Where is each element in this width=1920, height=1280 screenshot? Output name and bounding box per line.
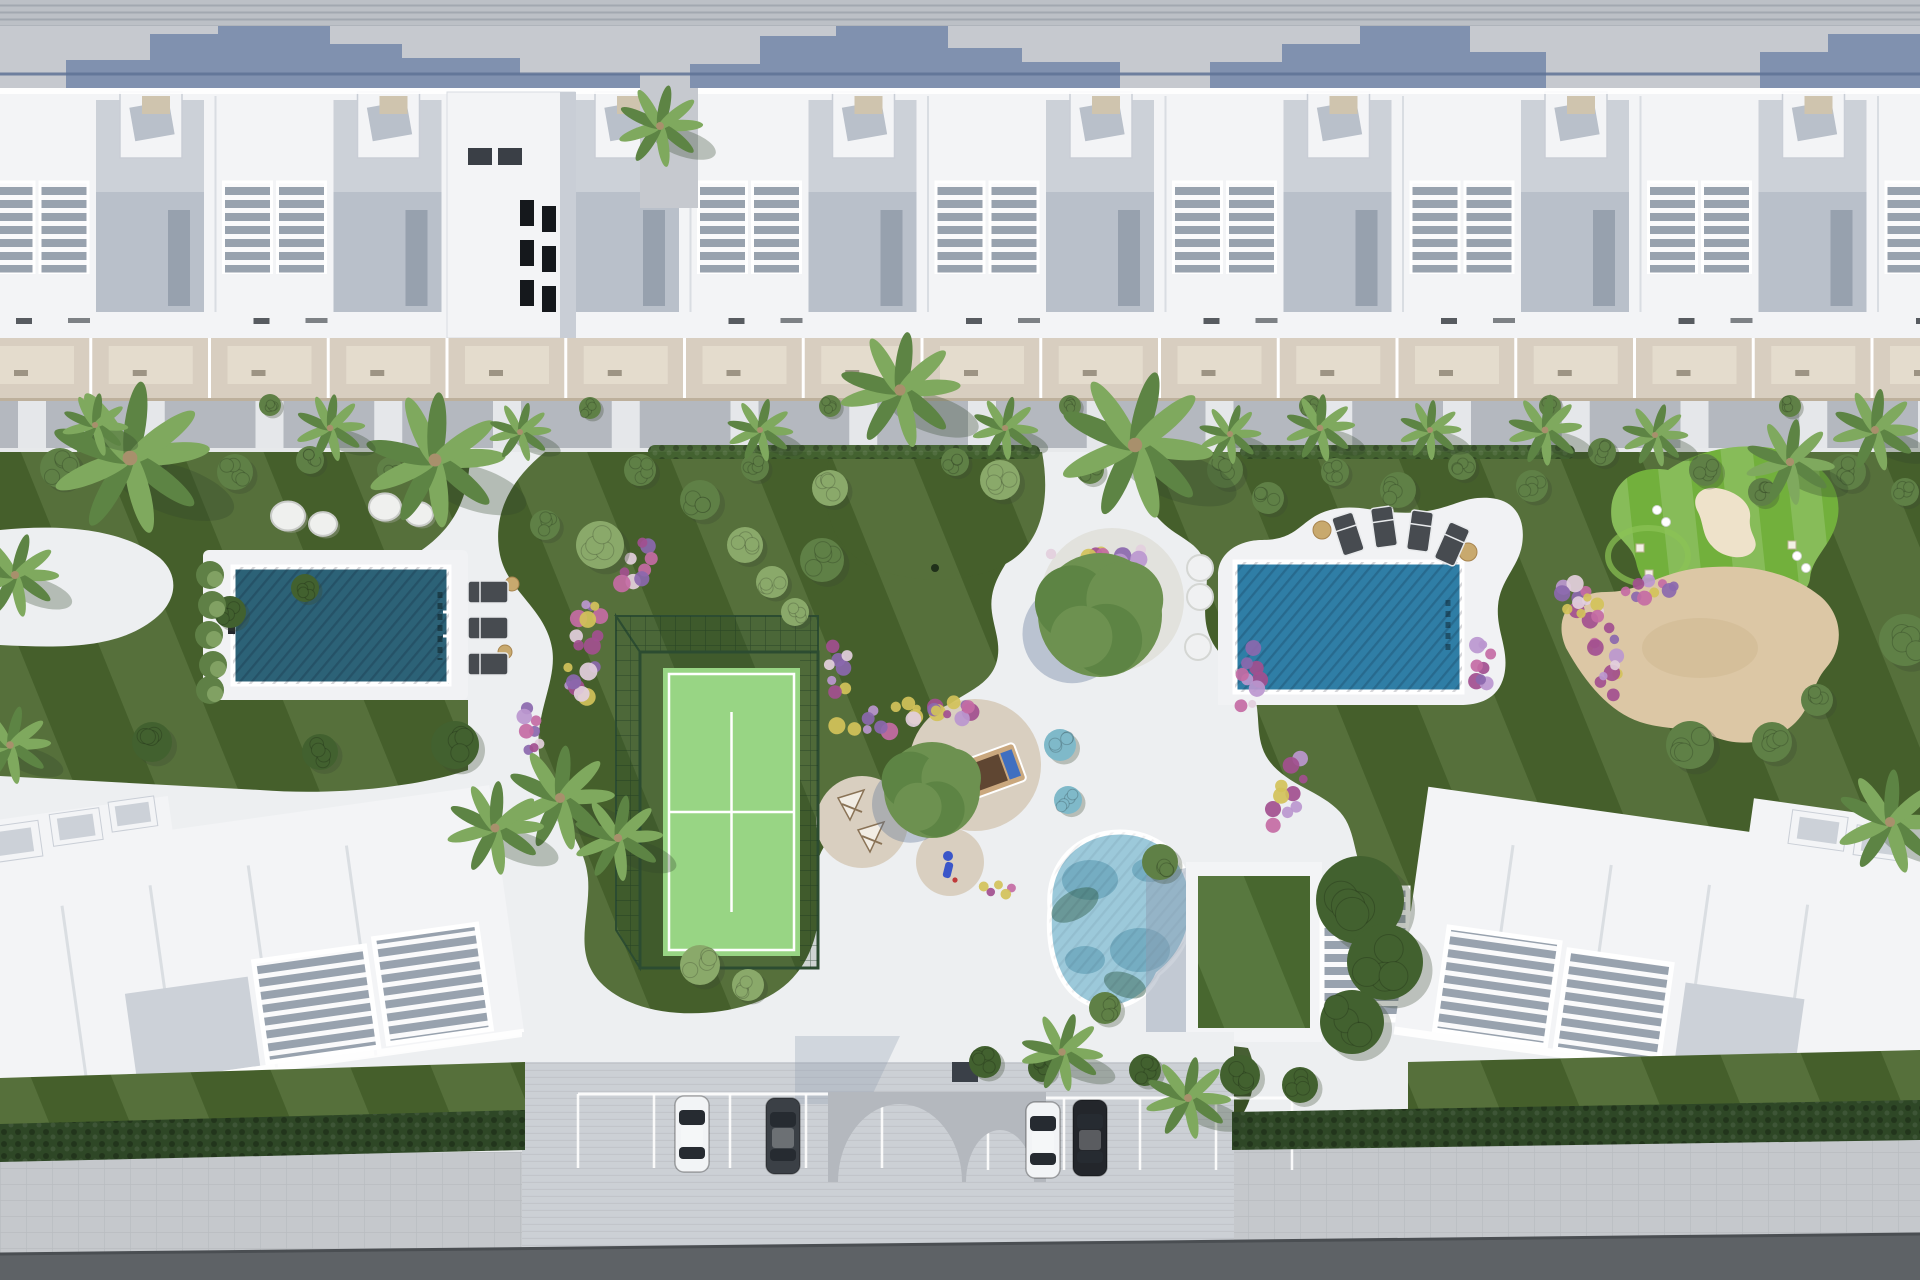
pergola-slats (936, 182, 984, 274)
window (306, 318, 328, 323)
bush-clump (451, 744, 469, 762)
flower-tuft (994, 880, 1003, 889)
lower-ledge (693, 274, 809, 286)
golf-ball (1802, 564, 1811, 573)
bush-clump (1268, 493, 1280, 505)
tree-canopy (894, 783, 942, 831)
flower-tuft (1001, 889, 1012, 900)
entry-door (729, 318, 745, 324)
parked-car (766, 1098, 800, 1174)
bush-clump (266, 400, 274, 408)
bush-clump (731, 536, 745, 550)
car-rear-window (679, 1147, 705, 1159)
facade-strip (210, 312, 448, 338)
entry-door (16, 318, 32, 324)
car-roof (681, 1126, 703, 1146)
golf-ball (1793, 552, 1802, 561)
terrace-patio (0, 346, 74, 384)
window (1018, 318, 1040, 323)
terrace-patio (703, 346, 787, 384)
palm-crown (1652, 432, 1658, 438)
site-plan-svg (0, 0, 1920, 1280)
right-pool-texture (1235, 562, 1462, 692)
entry-door (1916, 318, 1920, 324)
bush-clump (1331, 460, 1342, 471)
palm-crown (757, 427, 763, 433)
bush-clump (1841, 457, 1855, 471)
terrace-patio (346, 346, 430, 384)
driveway-apron (18, 401, 46, 451)
flower-tuft (1485, 649, 1496, 660)
palm-crown (6, 741, 14, 749)
parking-texture (522, 1058, 1234, 1248)
bush-clump (824, 405, 832, 413)
patio-furniture (1558, 370, 1572, 376)
parapet (685, 88, 923, 94)
parapet (1160, 88, 1398, 94)
bush-clump (593, 526, 611, 544)
bush-clump (1218, 459, 1232, 473)
bush-clump (220, 459, 234, 473)
pergola-slats (1555, 950, 1672, 1064)
stairwell (643, 210, 665, 306)
bush-clump (311, 743, 325, 757)
left-pool-texture (233, 567, 449, 684)
bush-clump (1102, 1009, 1114, 1021)
pergola-slats (1435, 927, 1560, 1046)
tee-marker (1636, 544, 1644, 552)
pergola-slats (1886, 182, 1920, 274)
padel-cage-right-grid (800, 652, 818, 968)
bush-clump (1061, 733, 1073, 745)
round-pouf (1185, 634, 1211, 660)
terrace-patio (1415, 346, 1499, 384)
bush-clump (1324, 995, 1348, 1019)
pergola-slats (254, 946, 379, 1063)
rooftop-pergola-box (380, 96, 408, 114)
flower-tuft (1469, 637, 1486, 654)
palm-crown (614, 834, 622, 842)
bush-clump (1141, 1057, 1153, 1069)
upper-ledge (1168, 160, 1284, 182)
upper-ledge (0, 160, 96, 182)
patio-furniture (1677, 370, 1691, 376)
lower-ledge (1168, 274, 1284, 286)
stairwell (1593, 210, 1615, 306)
car-rear-window (770, 1149, 796, 1161)
bush-clump (580, 409, 588, 417)
stairwell (1831, 210, 1853, 306)
upper-ledge (1643, 160, 1759, 182)
patio-furniture (1795, 370, 1809, 376)
upper-ledge (693, 160, 809, 182)
bush-clump (740, 976, 752, 988)
flower-tuft (1471, 659, 1483, 671)
palm-crown (1885, 817, 1895, 827)
corrugated-texture (0, 0, 1920, 26)
flower-tuft (931, 705, 941, 715)
palm-crown (1317, 425, 1323, 431)
bush-clump (774, 577, 786, 589)
window (68, 318, 90, 323)
terrace-edge-line (0, 398, 1920, 401)
terrace-patio (1296, 346, 1380, 384)
poolside-bush (199, 651, 227, 679)
golf-ball (1653, 506, 1662, 515)
poolside-bush (196, 676, 224, 704)
bush-clump (821, 474, 835, 488)
parapet (1872, 88, 1920, 94)
bush-clump (298, 587, 309, 598)
window (1731, 318, 1753, 323)
bush-clump (540, 512, 551, 523)
bush-clump (826, 487, 840, 501)
parapet (210, 88, 448, 94)
bush-clump (753, 456, 764, 467)
window (781, 318, 803, 323)
bush-clump (629, 457, 641, 469)
car-windshield (770, 1112, 796, 1127)
car-windshield (1030, 1116, 1056, 1131)
decorative-stone (309, 512, 337, 536)
terrace-patio (228, 346, 312, 384)
bush-clump (1691, 727, 1709, 745)
white-tower (447, 92, 576, 338)
flower-tuft (828, 685, 842, 699)
bush-clump (1383, 491, 1397, 505)
facade-strip (1160, 312, 1398, 338)
flower-tuft (826, 640, 839, 653)
bush-clump (1296, 1081, 1310, 1095)
bush-clump (1002, 472, 1017, 487)
bush-clump (207, 686, 223, 702)
facade-strip (685, 312, 923, 338)
bush-clump (209, 601, 225, 617)
flower-tuft (827, 676, 836, 685)
palm-crown (1871, 426, 1879, 434)
lower-ledge (930, 274, 1046, 286)
palm-crown (517, 429, 523, 435)
bush-clump (1519, 485, 1531, 497)
palm-crown (1058, 1048, 1066, 1056)
patio-furniture (727, 370, 741, 376)
bush-clump (1135, 1072, 1147, 1084)
pergola-slats (1465, 182, 1513, 274)
stairwell (881, 210, 903, 306)
padel-court-group (616, 616, 818, 968)
tee-marker (1788, 541, 1796, 549)
bush-clump (236, 472, 250, 486)
clubhouse-roof-stripes (1198, 876, 1310, 1028)
car-roof (1032, 1132, 1054, 1152)
palm-crown (1002, 425, 1008, 431)
bush-clump (44, 469, 59, 484)
facade-strip (0, 312, 210, 338)
bush-clump (683, 962, 698, 977)
bush-clump (1773, 731, 1788, 746)
palm-crown (894, 384, 905, 395)
pergola-slats (753, 182, 801, 274)
sand-shade (1642, 618, 1758, 678)
rooftop-ac-unit (498, 148, 522, 165)
car-roof (772, 1128, 794, 1148)
bush-clump (210, 661, 226, 677)
lounger-body (468, 653, 508, 675)
bush-clump (1348, 1022, 1372, 1046)
palm-crown (123, 451, 138, 466)
lounger-body (1370, 506, 1397, 549)
palm-crown (1128, 438, 1142, 452)
bush-clump (788, 603, 799, 614)
terrace-patio (584, 346, 668, 384)
window (1256, 318, 1278, 323)
entry-door (1441, 318, 1457, 324)
flower-tuft (842, 650, 853, 661)
terrace-patio (1653, 346, 1737, 384)
bush-clump (1335, 897, 1368, 930)
palm-crown (1227, 431, 1233, 437)
car-windshield (679, 1110, 705, 1125)
rooftop-pergola-box (142, 96, 170, 114)
bush-clump (1374, 935, 1403, 964)
aerial-site-render (0, 0, 1920, 1280)
facade-strip (1635, 312, 1873, 338)
bush-clump (588, 402, 596, 410)
lower-ledge (1643, 274, 1759, 286)
patio-furniture (1202, 370, 1216, 376)
entry-door (1204, 318, 1220, 324)
bush-clump (952, 454, 963, 465)
upper-ledge (930, 160, 1046, 182)
pergola-slats (374, 924, 492, 1043)
palm-crown (1184, 1094, 1192, 1102)
palm-crown (11, 571, 19, 579)
rooftop-pergola-box (1567, 96, 1595, 114)
sun-lounger (468, 653, 508, 675)
bush-clump (206, 631, 222, 647)
window (1493, 318, 1515, 323)
flower-tuft (1476, 674, 1486, 684)
terrace-patio (1178, 346, 1262, 384)
palm-crown (1427, 427, 1433, 433)
stairwell (1118, 210, 1140, 306)
rooftop-pergola-box (1092, 96, 1120, 114)
parapet (1635, 88, 1873, 94)
patio-furniture (608, 370, 622, 376)
pergola-slats (0, 182, 34, 274)
parapet (1397, 88, 1635, 94)
tower-side-shade (560, 92, 576, 338)
palm-crown (1542, 427, 1549, 434)
upper-ledge (1880, 160, 1920, 182)
decorative-stone (369, 493, 401, 520)
pergola-slats (699, 182, 747, 274)
side-table (1313, 521, 1331, 539)
palm-crown (555, 793, 565, 803)
entry-door (254, 318, 270, 324)
entry-door (966, 318, 982, 324)
bush-clump (1067, 789, 1078, 800)
sun-lounger (1406, 510, 1433, 553)
pergola-slats (1649, 182, 1697, 274)
lounger-body (1406, 510, 1433, 553)
sun-lounger (468, 581, 508, 603)
palm-crown (656, 122, 664, 130)
bush-clump (986, 475, 1001, 490)
stairwell (168, 210, 190, 306)
poolside-bush (195, 621, 223, 649)
patio-furniture (1083, 370, 1097, 376)
pergola-slats (990, 182, 1038, 274)
bush-clump (1599, 441, 1610, 452)
terrace-patio (940, 346, 1024, 384)
palm-crown (429, 454, 442, 467)
bush-clump (1238, 1073, 1253, 1088)
car-windshield (1077, 1114, 1103, 1129)
terrace-patio (465, 346, 549, 384)
flower-tuft (824, 659, 835, 670)
rooftop-pergola-box (1805, 96, 1833, 114)
lower-ledge (1405, 274, 1521, 286)
patio-furniture (133, 370, 147, 376)
patio-furniture (489, 370, 503, 376)
rooftop-ac-unit (468, 148, 492, 165)
bush-clump (1049, 738, 1061, 750)
bush-clump (140, 729, 155, 744)
palm-crown (92, 422, 98, 428)
patio-furniture (14, 370, 28, 376)
lower-ledge (0, 274, 96, 286)
sun-lounger (468, 617, 508, 639)
pergola-slats (1174, 182, 1222, 274)
terrace-patio (1771, 346, 1855, 384)
stairwell (406, 210, 428, 306)
terrace-patio (1059, 346, 1143, 384)
lower-ledge (218, 274, 334, 286)
bush-clump (1352, 958, 1381, 987)
terrace-patio (1534, 346, 1618, 384)
townhouse-row (0, 88, 1920, 338)
bush-clump (745, 538, 759, 552)
pergola-slats (40, 182, 88, 274)
golf-ball (1662, 518, 1671, 527)
parked-car (1073, 1100, 1107, 1176)
bush-clump (303, 449, 314, 460)
pergola-slats (224, 182, 272, 274)
bush-clump (1379, 962, 1408, 991)
round-pouf (1187, 555, 1213, 581)
pergola-slats (1703, 182, 1751, 274)
rooftop-pergola-box (1330, 96, 1358, 114)
patio-furniture (252, 370, 266, 376)
facade-strip (1872, 312, 1920, 338)
bush-clump (1706, 459, 1718, 471)
car-roof (1079, 1130, 1101, 1150)
pergola-slats (1228, 182, 1276, 274)
parked-car (1026, 1102, 1060, 1178)
bush-clump (1332, 472, 1343, 483)
decorative-stone (271, 502, 305, 531)
bush-clump (701, 950, 716, 965)
facade-strip (922, 312, 1160, 338)
flower-tuft (1046, 549, 1056, 559)
bush-clump (538, 525, 549, 536)
pergola-slats (278, 182, 326, 274)
bush-clump (760, 578, 772, 590)
poolside-bush (196, 561, 224, 589)
bush-clump (1452, 464, 1463, 475)
car-rear-window (1030, 1153, 1056, 1165)
palm-crown (327, 425, 333, 431)
patio-furniture (1320, 370, 1334, 376)
bush-clump (1783, 396, 1791, 404)
lower-ledge (1880, 274, 1920, 286)
hedgerow-texture (1240, 445, 1575, 459)
flower-tuft (961, 700, 975, 714)
bush-clump (1894, 488, 1905, 499)
tree-canopy (1050, 606, 1112, 668)
pergola-slats (1411, 182, 1459, 274)
palm-crown (1786, 458, 1794, 466)
bush-clump (1808, 686, 1820, 698)
bush-clump (983, 1061, 995, 1073)
bush-clump (814, 542, 831, 559)
bush-clump (973, 1053, 985, 1065)
patio-furniture (1914, 370, 1920, 376)
hedgerow-texture (648, 445, 1040, 459)
sun-lounger (1370, 506, 1397, 549)
patio-furniture (964, 370, 978, 376)
lounger-body (468, 617, 508, 639)
bush-clump (1066, 404, 1074, 412)
flower-tuft (947, 695, 961, 709)
bush-clump (1056, 801, 1067, 812)
clubhouse-shadow (1146, 868, 1186, 1042)
patio-furniture (370, 370, 384, 376)
bush-clump (1254, 487, 1266, 499)
roof-terrace (125, 977, 260, 1083)
terrace-patio (109, 346, 193, 384)
bush-clump (1160, 863, 1174, 877)
lounger-body (468, 581, 508, 603)
patio-furniture (1439, 370, 1453, 376)
bush-clump (1694, 467, 1706, 479)
parapet (0, 88, 210, 94)
parked-car (675, 1096, 709, 1172)
driveway-apron (612, 401, 640, 451)
bush-clump (641, 458, 653, 470)
putting-hole (931, 564, 939, 572)
car-rear-window (1077, 1151, 1103, 1163)
entry-door (1679, 318, 1695, 324)
upper-ledge (1405, 160, 1521, 182)
bush-clump (695, 497, 710, 512)
terrace-patio (1890, 346, 1920, 384)
round-pouf (1187, 584, 1213, 610)
stairwell (1356, 210, 1378, 306)
flower-tuft (943, 710, 951, 718)
upper-ledge (218, 160, 334, 182)
flower-tuft (979, 882, 989, 892)
bush-clump (1904, 482, 1915, 493)
bush-clump (1674, 743, 1692, 761)
bush-clump (207, 571, 223, 587)
facade-strip (1397, 312, 1635, 338)
poolside-bush (198, 591, 226, 619)
palm-crown (491, 824, 500, 833)
rooftop-pergola-box (855, 96, 883, 114)
parapet (922, 88, 1160, 94)
